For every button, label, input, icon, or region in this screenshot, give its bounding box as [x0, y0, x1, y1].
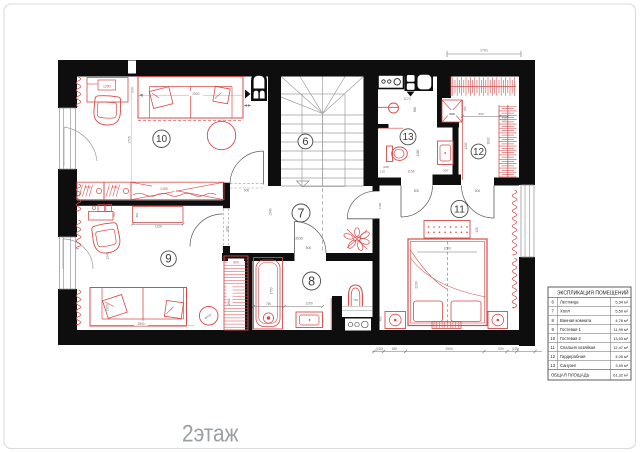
svg-text:ОБЩАЯ ПЛОЩАДЬ: ОБЩАЯ ПЛОЩАДЬ — [551, 372, 590, 377]
svg-text:5,34 м²: 5,34 м² — [615, 300, 628, 305]
svg-text:1890: 1890 — [487, 137, 491, 144]
svg-text:11: 11 — [454, 204, 465, 216]
svg-text:2500: 2500 — [192, 92, 199, 96]
svg-text:Спальня хозяйкая: Спальня хозяйкая — [560, 345, 595, 350]
svg-text:760: 760 — [353, 298, 358, 302]
svg-text:11: 11 — [551, 345, 556, 350]
svg-text:6: 6 — [302, 136, 308, 148]
svg-text:(225): (225) — [512, 347, 519, 351]
svg-text:900: 900 — [225, 226, 229, 232]
svg-text:800: 800 — [306, 246, 312, 250]
svg-text:Ванная комната: Ванная комната — [560, 318, 592, 323]
svg-text:800: 800 — [414, 189, 420, 193]
svg-text:600: 600 — [85, 186, 91, 190]
svg-text:(180): (180) — [383, 165, 389, 169]
svg-text:1170: 1170 — [403, 97, 410, 101]
svg-text:10: 10 — [156, 134, 168, 145]
svg-text:12: 12 — [550, 354, 555, 359]
svg-text:1701: 1701 — [480, 49, 488, 53]
svg-text:600: 600 — [112, 186, 118, 190]
svg-text:4,76 м²: 4,76 м² — [615, 318, 628, 323]
svg-text:12: 12 — [473, 147, 485, 158]
svg-text:2этаж: 2этаж — [182, 421, 239, 448]
svg-text:500: 500 — [449, 112, 454, 116]
svg-text:12,47 м²: 12,47 м² — [613, 345, 628, 350]
svg-text:450: 450 — [321, 318, 325, 323]
svg-text:(220): (220) — [376, 347, 383, 351]
svg-text:1801: 1801 — [227, 298, 231, 305]
svg-text:1180: 1180 — [416, 149, 420, 156]
svg-text:2190: 2190 — [160, 187, 168, 191]
svg-text:Холл: Холл — [560, 309, 570, 314]
svg-text:1150: 1150 — [407, 169, 414, 173]
svg-text:450: 450 — [379, 316, 383, 321]
svg-text:530: 530 — [392, 347, 398, 351]
svg-text:10: 10 — [550, 336, 555, 341]
svg-text:1100: 1100 — [378, 202, 382, 209]
svg-text:2500: 2500 — [137, 322, 144, 326]
svg-text:1200: 1200 — [155, 225, 163, 229]
svg-text:Лестница: Лестница — [560, 300, 579, 305]
svg-text:1200: 1200 — [464, 142, 468, 149]
svg-text:2200: 2200 — [415, 281, 419, 289]
svg-text:Гостевая 1: Гостевая 1 — [560, 327, 582, 332]
svg-text:190: 190 — [502, 118, 507, 122]
svg-text:750: 750 — [266, 302, 272, 306]
svg-text:1705: 1705 — [128, 136, 132, 144]
svg-text:400: 400 — [135, 213, 139, 218]
svg-text:8: 8 — [308, 274, 315, 288]
svg-text:1900: 1900 — [445, 347, 453, 351]
svg-text:1340: 1340 — [106, 252, 110, 260]
svg-text:800: 800 — [475, 189, 481, 193]
svg-text:1200: 1200 — [443, 247, 451, 251]
svg-text:1200: 1200 — [305, 302, 313, 306]
svg-text:5,59 м²: 5,59 м² — [615, 309, 628, 314]
svg-text:61,32 м²: 61,32 м² — [613, 372, 628, 377]
svg-text:Санузел: Санузел — [560, 363, 577, 368]
svg-text:3535: 3535 — [295, 236, 303, 240]
svg-text:13,53 м²: 13,53 м² — [613, 336, 628, 341]
svg-text:Гостевая 2: Гостевая 2 — [560, 336, 582, 341]
svg-text:1000: 1000 — [106, 304, 110, 312]
svg-text:7: 7 — [298, 206, 305, 220]
svg-text:600: 600 — [112, 212, 116, 217]
svg-text:1750: 1750 — [270, 287, 274, 294]
svg-text:4,05 м²: 4,05 м² — [615, 354, 628, 359]
svg-text:430: 430 — [475, 227, 479, 233]
svg-text:300: 300 — [443, 169, 448, 173]
svg-text:1200: 1200 — [103, 85, 111, 89]
svg-text:1540: 1540 — [269, 208, 273, 216]
svg-text:530: 530 — [498, 347, 504, 351]
svg-text:3,59 м²: 3,59 м² — [615, 363, 628, 368]
svg-text:860: 860 — [413, 107, 417, 113]
svg-text:ЭКСПЛИКАЦИЯ ПОМЕЩЕНИЙ: ЭКСПЛИКАЦИЯ ПОМЕЩЕНИЙ — [557, 289, 629, 297]
svg-text:Гардеробная: Гардеробная — [560, 354, 585, 359]
svg-text:600: 600 — [233, 261, 239, 265]
svg-text:900: 900 — [244, 188, 250, 192]
svg-text:13: 13 — [402, 132, 414, 143]
svg-text:13: 13 — [550, 363, 555, 368]
svg-text:120: 120 — [380, 169, 385, 173]
svg-text:11,99 м²: 11,99 м² — [614, 327, 629, 332]
svg-text:895: 895 — [478, 112, 483, 116]
svg-text:9: 9 — [165, 254, 171, 266]
svg-text:190: 190 — [463, 106, 467, 111]
svg-text:630: 630 — [131, 87, 135, 93]
